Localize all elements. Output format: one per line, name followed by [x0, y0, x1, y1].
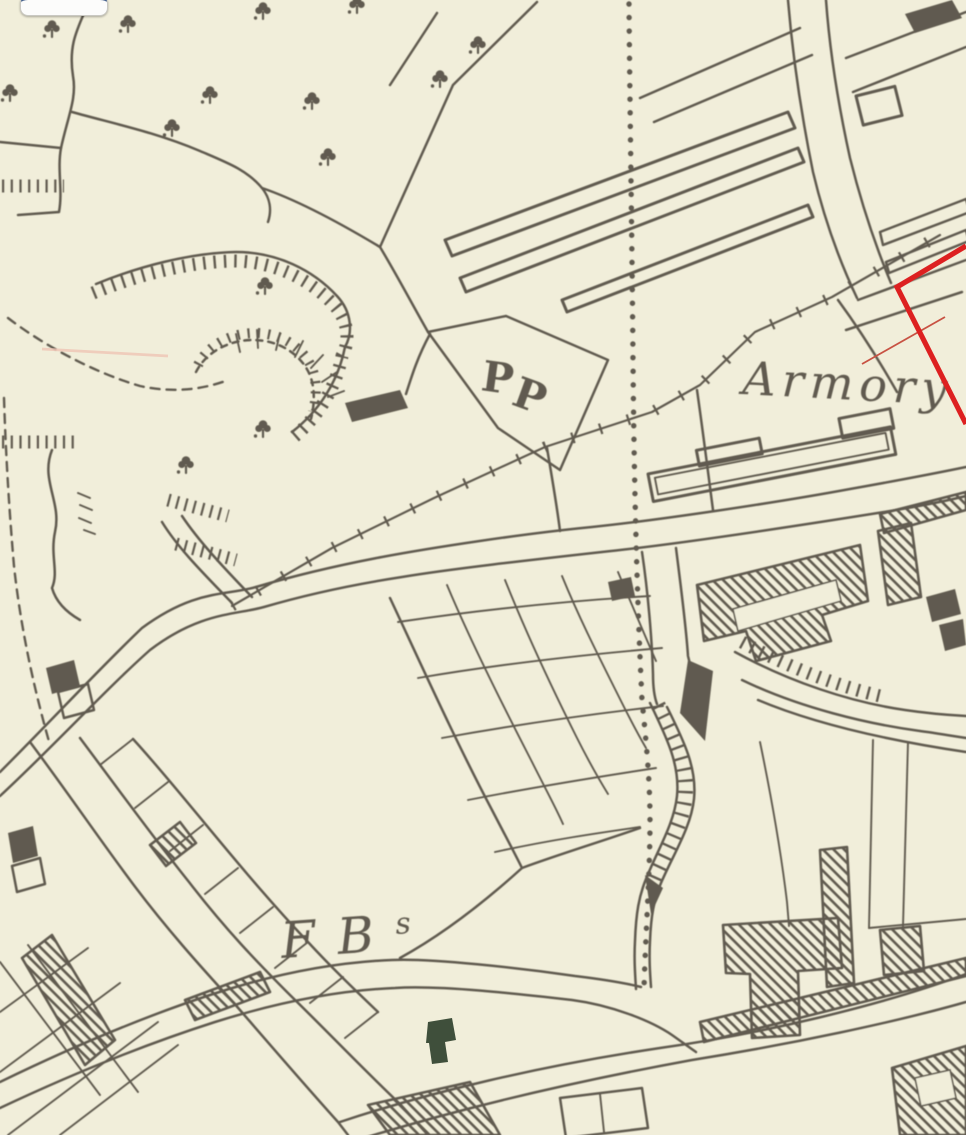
historic-map-svg: Armory P P FBs — [0, 0, 966, 1135]
map-canvas[interactable]: Armory P P FBs — [0, 0, 966, 1135]
map-label-armory: Armory — [737, 351, 954, 416]
map-label-pp-1: P — [479, 351, 517, 404]
ui-button-fragment[interactable] — [20, 0, 108, 16]
